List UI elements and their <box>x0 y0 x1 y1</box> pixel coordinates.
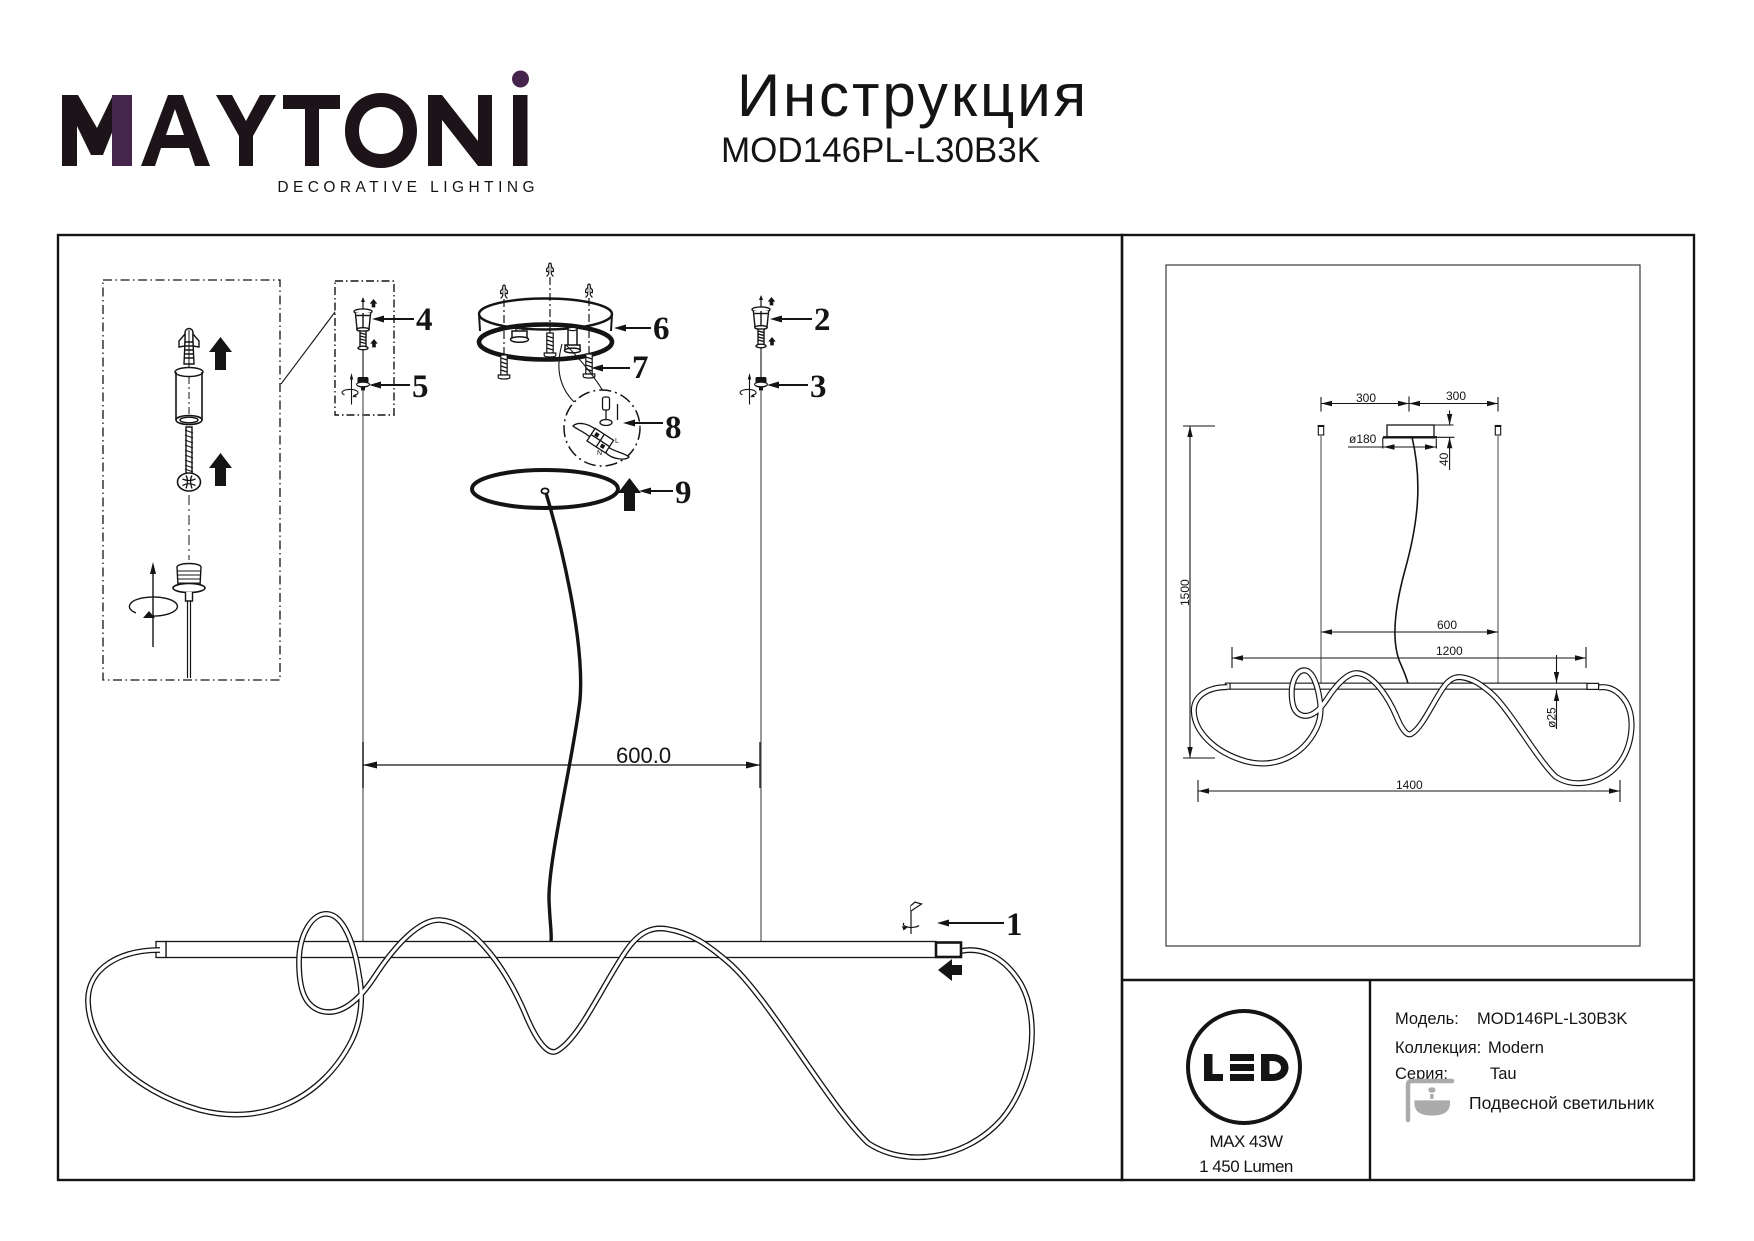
svg-text:Коллекция:: Коллекция: <box>1395 1039 1481 1057</box>
svg-text:ø25: ø25 <box>1545 707 1559 728</box>
svg-text:600.0: 600.0 <box>616 743 671 768</box>
svg-text:9: 9 <box>675 475 692 511</box>
svg-text:DECORATIVE LIGHTING: DECORATIVE LIGHTING <box>277 179 539 196</box>
svg-text:600: 600 <box>1437 618 1457 632</box>
svg-text:6: 6 <box>653 311 670 347</box>
svg-text:MOD146PL-L30B3K: MOD146PL-L30B3K <box>1477 1010 1627 1028</box>
svg-text:Modern: Modern <box>1488 1039 1544 1057</box>
svg-text:ø180: ø180 <box>1349 432 1377 446</box>
svg-text:MOD146PL-L30B3K: MOD146PL-L30B3K <box>721 131 1040 170</box>
svg-text:MAX 43W: MAX 43W <box>1209 1132 1282 1151</box>
svg-text:5: 5 <box>412 369 429 405</box>
svg-text:1500: 1500 <box>1178 579 1192 606</box>
svg-text:3: 3 <box>810 369 827 405</box>
svg-text:1: 1 <box>1006 907 1023 943</box>
svg-text:L: L <box>615 438 619 445</box>
svg-text:Tau: Tau <box>1490 1065 1517 1083</box>
svg-text:Модель:: Модель: <box>1395 1010 1459 1028</box>
svg-text:300: 300 <box>1446 389 1466 403</box>
svg-text:1 450 Lumen: 1 450 Lumen <box>1199 1157 1293 1176</box>
svg-text:2: 2 <box>814 302 831 338</box>
svg-text:300: 300 <box>1356 391 1376 405</box>
svg-text:40: 40 <box>1437 452 1451 466</box>
svg-text:7: 7 <box>632 350 649 386</box>
svg-text:1200: 1200 <box>1436 644 1463 658</box>
svg-text:8: 8 <box>665 410 682 446</box>
svg-text:4: 4 <box>416 302 433 338</box>
svg-text:1400: 1400 <box>1396 778 1423 792</box>
svg-text:Инструкция: Инструкция <box>737 62 1089 129</box>
svg-text:N: N <box>597 450 602 457</box>
svg-text:Подвесной светильник: Подвесной светильник <box>1469 1093 1654 1113</box>
